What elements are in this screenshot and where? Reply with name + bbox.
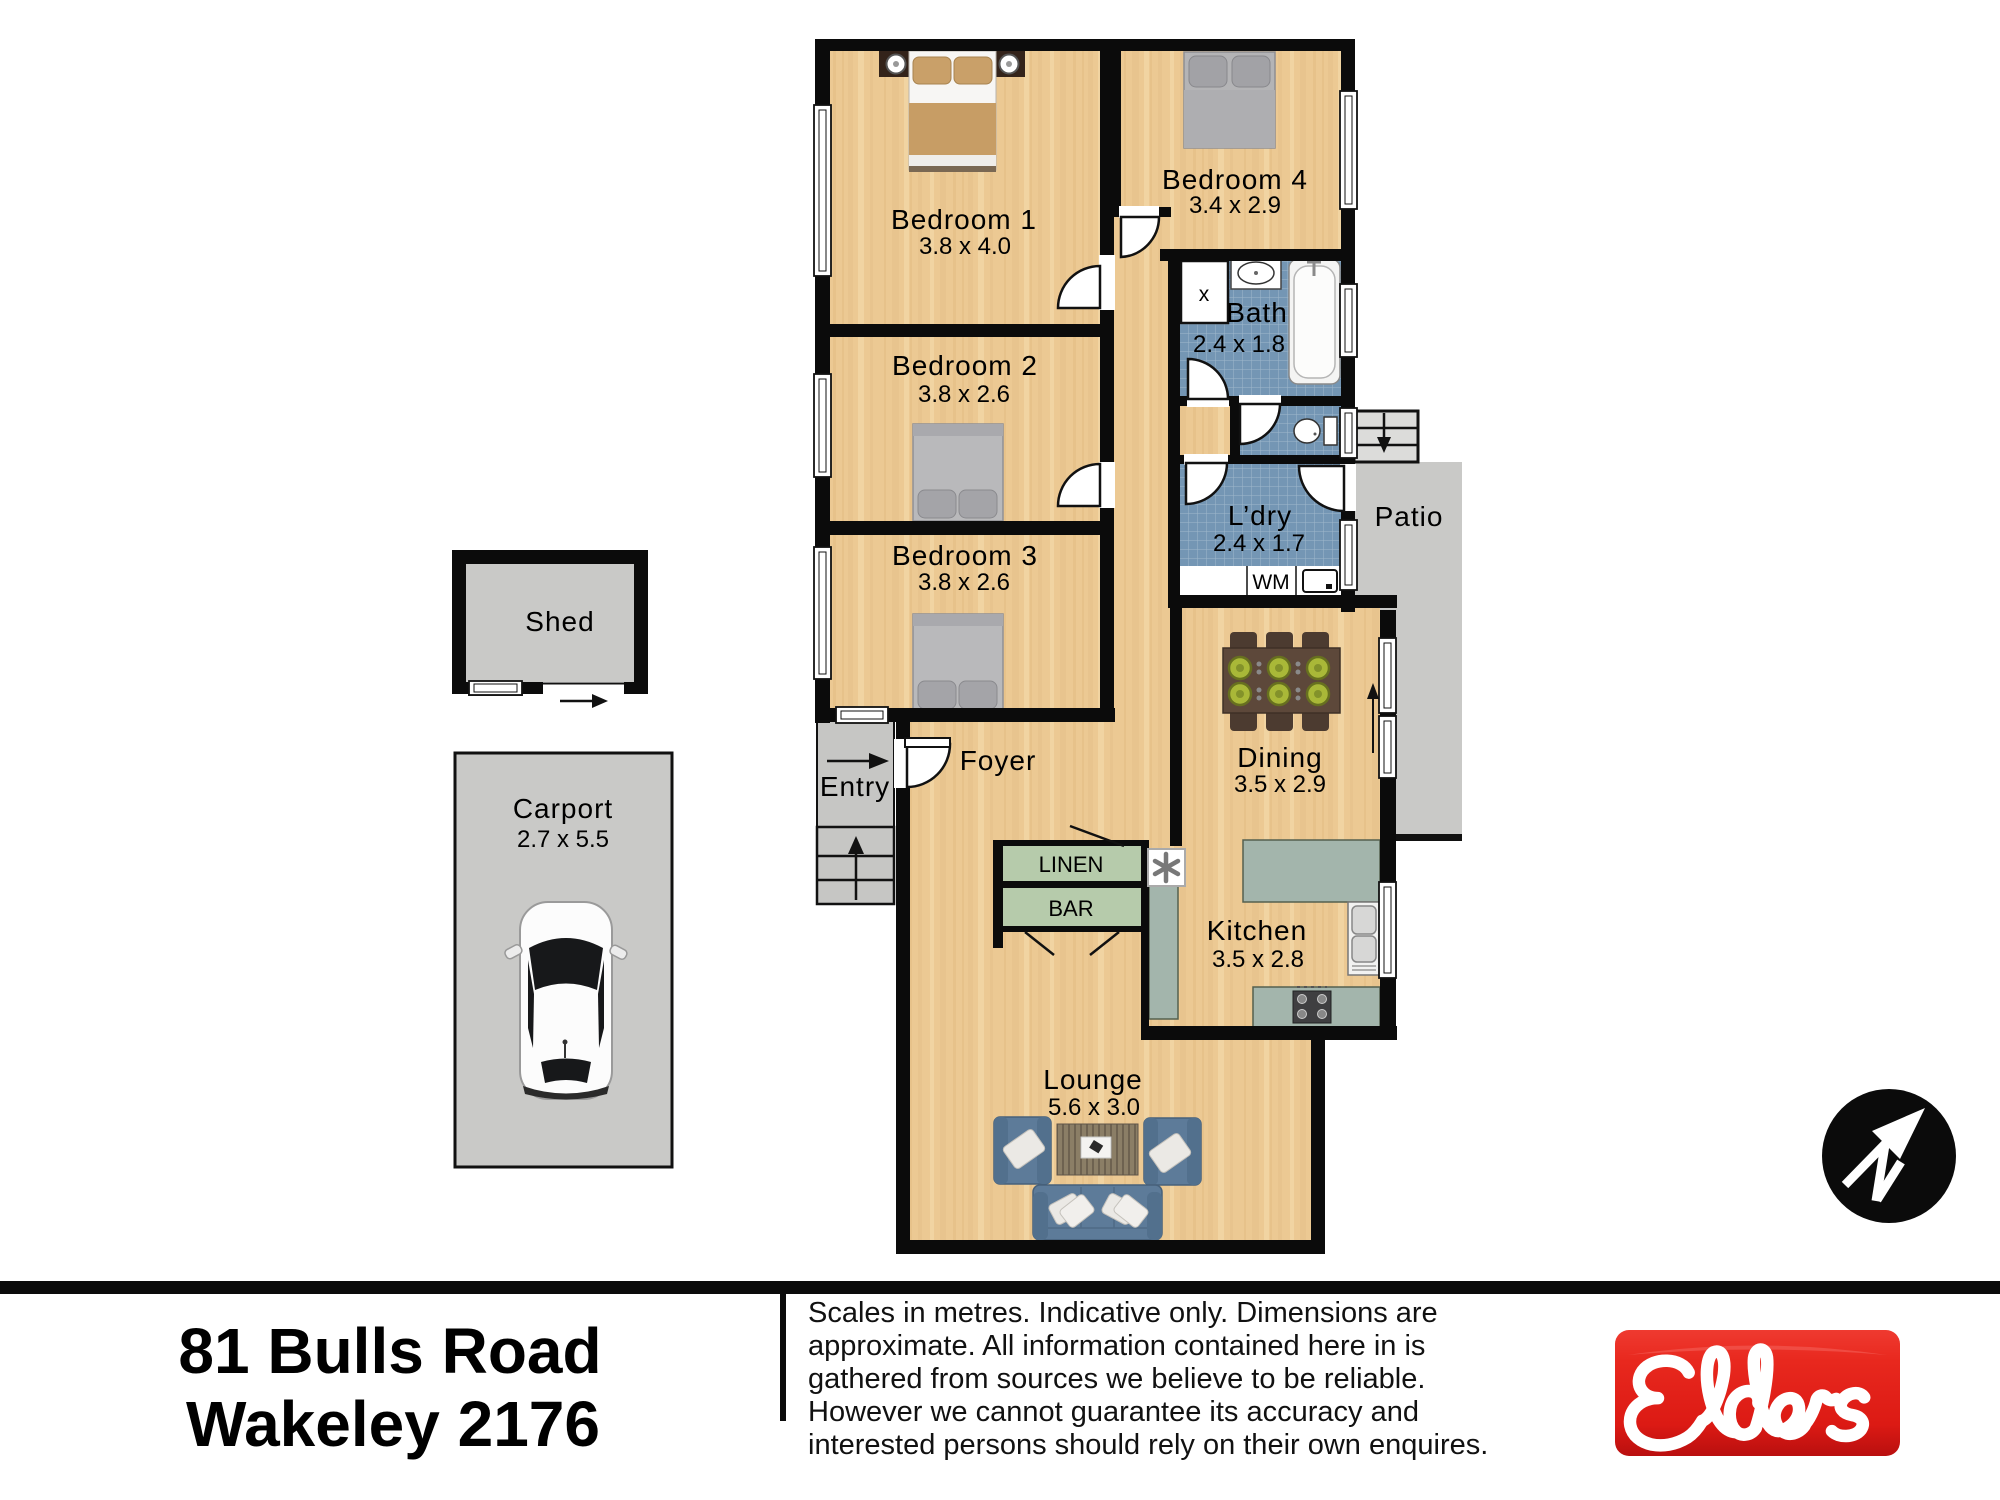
svg-text:x: x [1199,283,1210,306]
svg-text:Patio: Patio [1375,501,1444,532]
svg-text:3.8 x 2.6: 3.8 x 2.6 [918,381,1010,408]
svg-text:5.6 x 3.0: 5.6 x 3.0 [1048,1094,1140,1121]
svg-text:Bedroom 2: Bedroom 2 [892,350,1038,381]
svg-text:Shed: Shed [525,606,594,637]
svg-text:Entry: Entry [820,771,890,802]
svg-text:3.8 x 2.6: 3.8 x 2.6 [918,569,1010,596]
svg-text:2.4 x 1.7: 2.4 x 1.7 [1213,530,1305,557]
svg-text:Scales in metres. Indicative o: Scales in metres. Indicative only. Dimen… [808,1297,1438,1329]
svg-text:BAR: BAR [1048,896,1093,921]
svg-text:Bedroom 1: Bedroom 1 [891,204,1037,235]
svg-text:81 Bulls Road: 81 Bulls Road [178,1315,601,1387]
svg-text:LINEN: LINEN [1039,852,1104,877]
svg-text:Carport: Carport [513,793,613,824]
svg-text:gathered from sources we belie: gathered from sources we believe to be r… [808,1363,1425,1395]
svg-text:Bath: Bath [1226,297,1288,328]
svg-text:Dining: Dining [1237,742,1322,773]
svg-text:Kitchen: Kitchen [1207,915,1307,946]
svg-text:However we cannot guarantee it: However we cannot guarantee its accuracy… [808,1396,1419,1428]
svg-text:interested persons should rely: interested persons should rely on their … [808,1429,1488,1461]
svg-text:Bedroom 3: Bedroom 3 [892,540,1038,571]
svg-text:Wakeley 2176: Wakeley 2176 [186,1388,600,1460]
svg-text:L’dry: L’dry [1228,500,1292,531]
svg-text:WM: WM [1252,571,1289,594]
svg-text:2.4 x 1.8: 2.4 x 1.8 [1193,331,1285,358]
svg-text:3.8 x 4.0: 3.8 x 4.0 [919,233,1011,260]
svg-text:Bedroom 4: Bedroom 4 [1162,164,1308,195]
svg-text:Lounge: Lounge [1043,1064,1142,1095]
svg-text:3.5 x 2.9: 3.5 x 2.9 [1234,771,1326,798]
svg-text:Foyer: Foyer [960,745,1037,776]
svg-text:approximate. All information c: approximate. All information contained h… [808,1330,1425,1362]
svg-text:2.7 x 5.5: 2.7 x 5.5 [517,826,609,853]
svg-text:3.5 x 2.8: 3.5 x 2.8 [1212,946,1304,973]
svg-text:3.4 x 2.9: 3.4 x 2.9 [1189,192,1281,219]
